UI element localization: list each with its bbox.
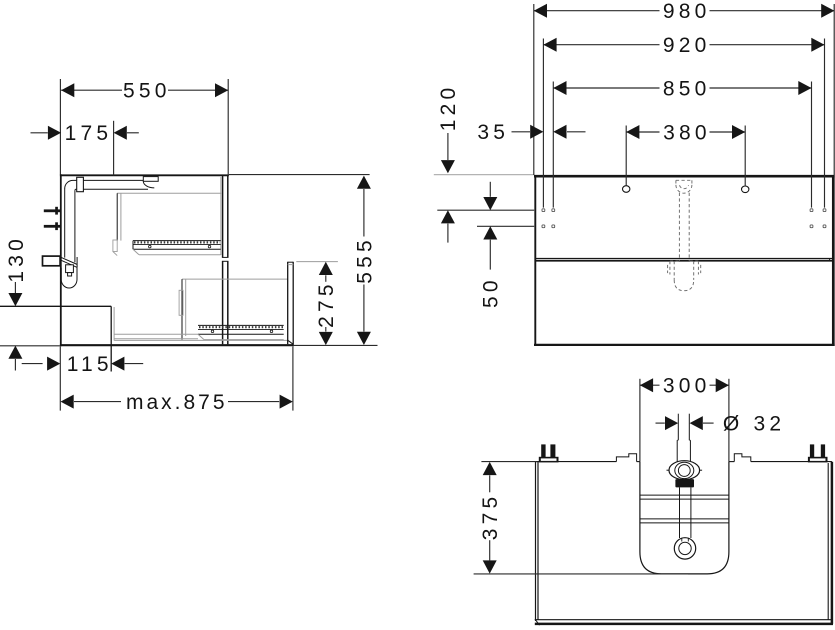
svg-text:115: 115 (67, 353, 113, 376)
svg-text:175: 175 (65, 122, 113, 145)
svg-text:380: 380 (663, 121, 711, 144)
svg-text:375: 375 (479, 493, 502, 541)
svg-text:550: 550 (123, 80, 171, 103)
svg-text:130: 130 (5, 235, 28, 283)
svg-text:850: 850 (663, 77, 711, 100)
svg-text:35: 35 (477, 121, 509, 144)
svg-text:920: 920 (663, 34, 711, 57)
svg-text:275: 275 (315, 280, 338, 328)
svg-text:max.875: max.875 (126, 391, 228, 414)
svg-text:Ø 32: Ø 32 (723, 413, 785, 436)
svg-text:555: 555 (353, 236, 376, 284)
svg-text:50: 50 (479, 276, 502, 308)
svg-text:120: 120 (437, 84, 460, 132)
svg-text:980: 980 (663, 0, 711, 23)
svg-text:300: 300 (663, 375, 711, 398)
